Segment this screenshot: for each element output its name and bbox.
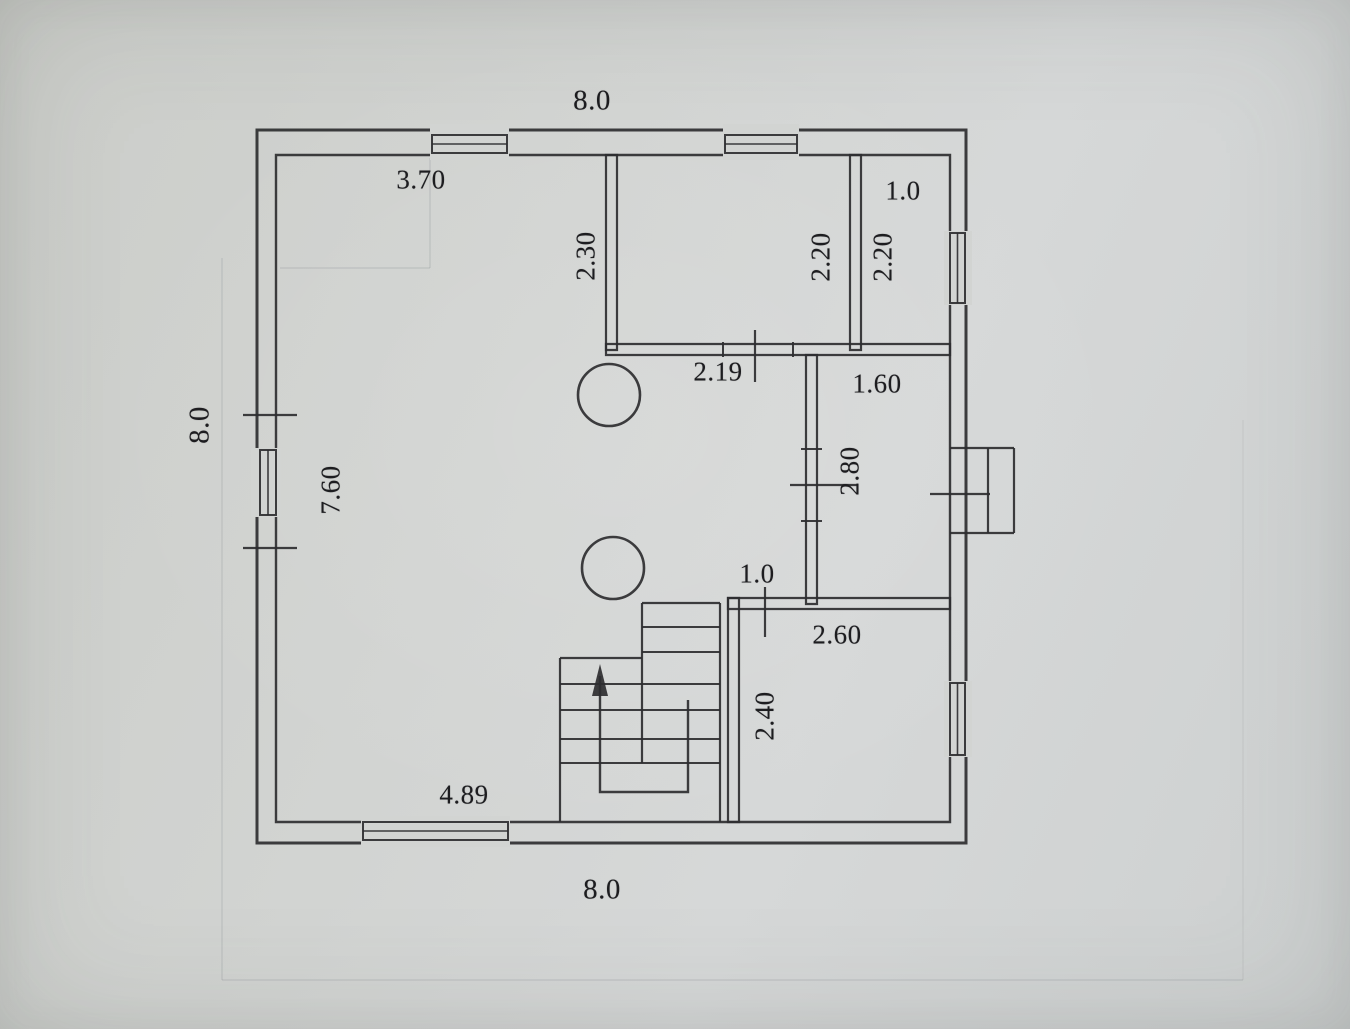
- partition-top-right-vertical: [850, 155, 861, 350]
- dim-label-2-40: 2.40: [750, 691, 781, 740]
- dim-label-2-80: 2.80: [835, 446, 866, 495]
- scanned-floor-plan-photo: 8.0 3.70 1.0 2.30 2.20 2.20 2.19 1.60 8.…: [0, 0, 1350, 1029]
- dim-label-4-89: 4.89: [439, 780, 488, 811]
- stairs-direction-arrow: [592, 664, 608, 696]
- partition-corridor-vertical: [806, 355, 817, 604]
- dim-label-2-20-a: 2.20: [806, 232, 837, 281]
- partition-horizontal-upper: [606, 344, 950, 355]
- dim-label-2-60: 2.60: [812, 620, 861, 651]
- partition-top-left-vertical: [606, 155, 617, 350]
- partition-horizontal-lower: [728, 598, 950, 609]
- floor-plan-drawing: [0, 0, 1350, 1029]
- staircase: [560, 603, 720, 822]
- dim-label-3-70: 3.70: [396, 165, 445, 196]
- dim-label-2-20-b: 2.20: [868, 232, 899, 281]
- circle-marker-upper: [578, 364, 640, 426]
- window-opening-mask: [723, 124, 799, 160]
- dim-label-overall-width-top: 8.0: [573, 85, 611, 118]
- dim-label-2-30: 2.30: [571, 231, 602, 280]
- circle-markers: [578, 364, 644, 599]
- dim-label-1-0-top: 1.0: [885, 176, 920, 207]
- chimney-block: [950, 448, 1014, 533]
- dim-label-overall-width-bottom: 8.0: [583, 874, 621, 907]
- stair-walk-line: [600, 676, 688, 792]
- dim-label-overall-height-left: 8.0: [184, 406, 217, 444]
- circle-marker-lower: [582, 537, 644, 599]
- window-opening-mask: [430, 124, 509, 160]
- dim-label-7-60: 7.60: [316, 465, 347, 514]
- dim-label-2-19: 2.19: [693, 357, 742, 388]
- dim-label-1-0-mid: 1.0: [739, 559, 774, 590]
- partition-bottom-room-vertical: [728, 598, 739, 822]
- dim-label-1-60: 1.60: [852, 369, 901, 400]
- ghost-lines: [222, 158, 1243, 980]
